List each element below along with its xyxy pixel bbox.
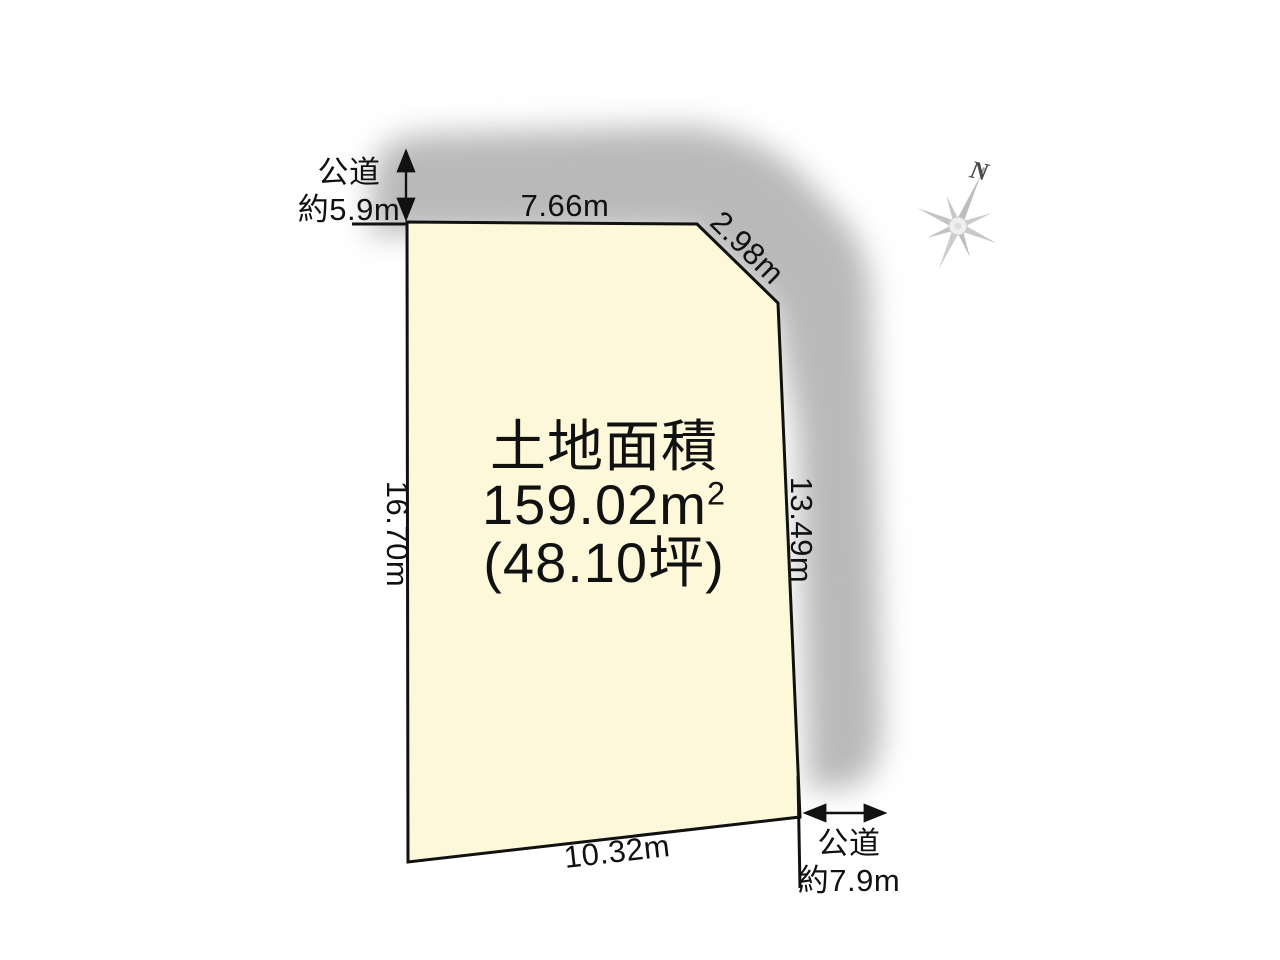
dim-top: 7.66m (521, 188, 610, 224)
road-bottom-width: 約7.9m (798, 862, 900, 899)
land-plot-diagram: 公道 約5.9m 7.66m 2.98m 16.70m 13.49m 10.32… (0, 0, 1280, 960)
area-value-line: 159.02m2 (482, 476, 726, 534)
area-text-block: 土地面積 159.02m2 (48.10坪) (482, 418, 726, 592)
road-top-label: 公道 約5.9m (298, 154, 400, 228)
road-top-name: 公道 (298, 154, 400, 191)
road-top-width: 約5.9m (298, 191, 400, 228)
compass-rose-icon (895, 148, 1029, 290)
area-value-sup: 2 (707, 475, 726, 511)
road-bottom-name: 公道 (798, 825, 900, 862)
area-tsubo: (48.10坪) (482, 534, 726, 592)
area-title: 土地面積 (482, 418, 726, 476)
road-bottom-label: 公道 約7.9m (798, 825, 900, 899)
area-value: 159.02m (482, 473, 707, 536)
dim-left: 16.70m (379, 481, 415, 587)
dim-right: 13.49m (783, 477, 819, 583)
